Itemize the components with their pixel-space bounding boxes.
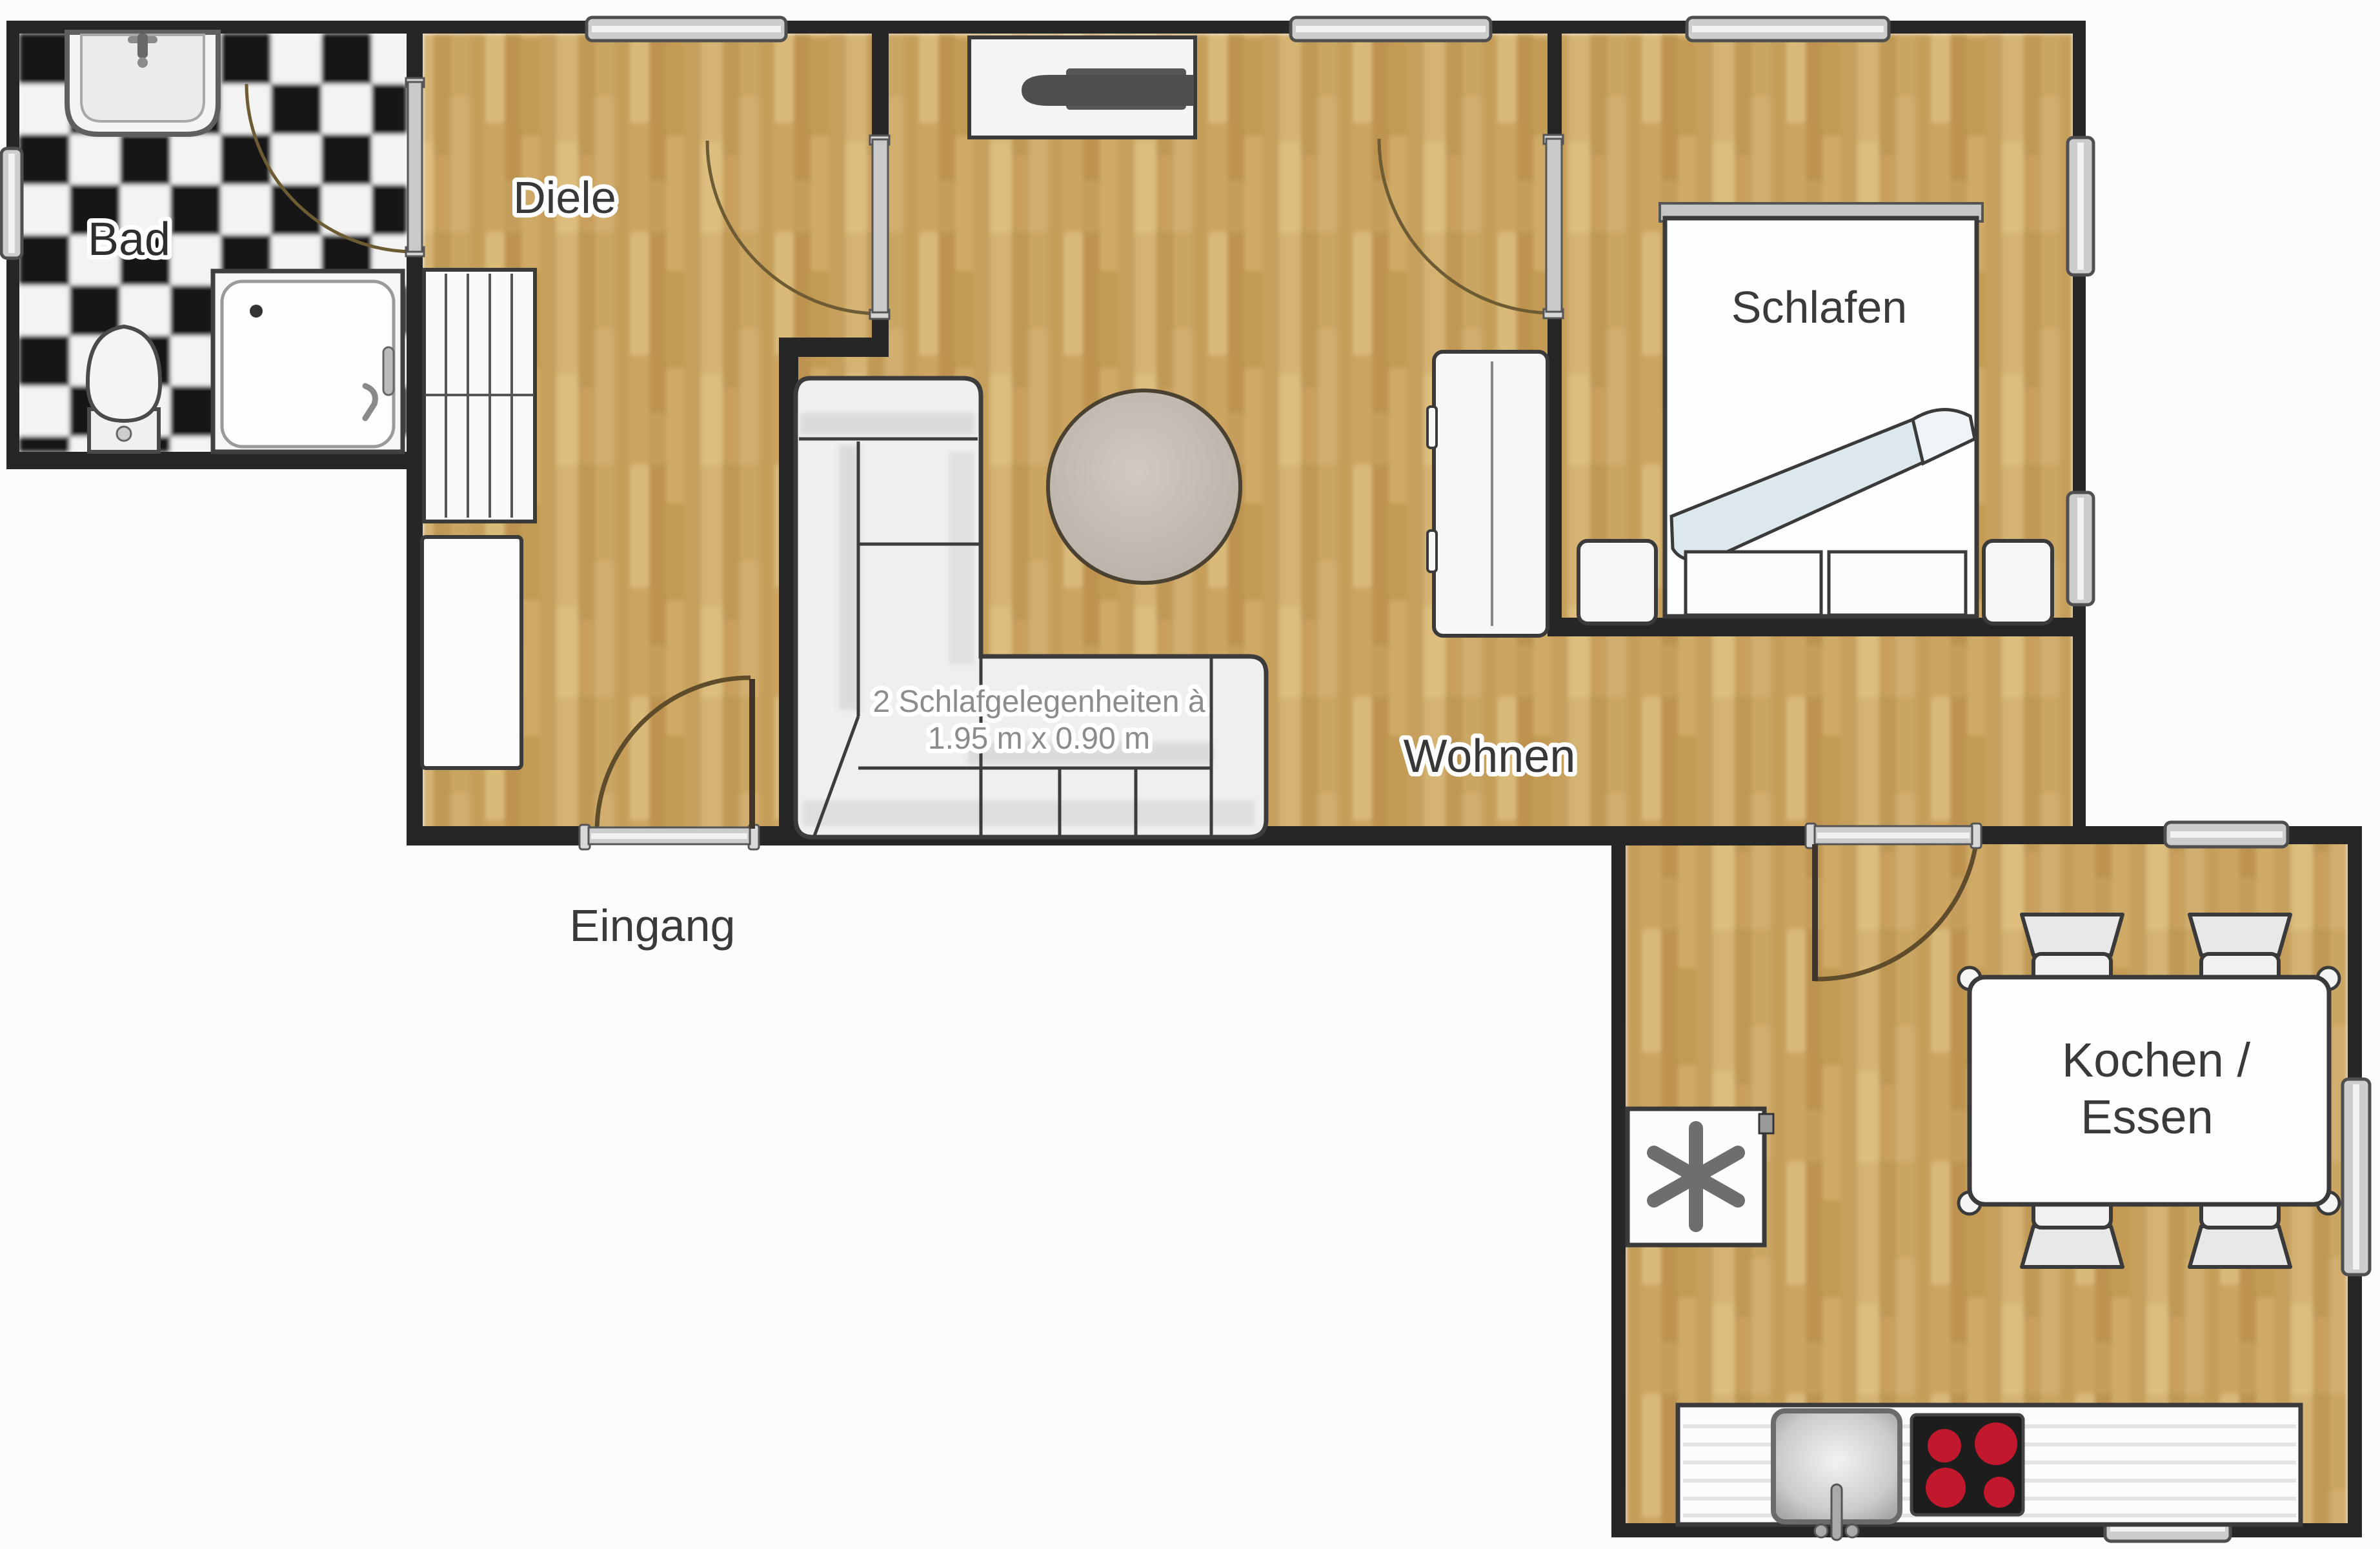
svg-text:Bad: Bad <box>88 214 170 265</box>
svg-text:2 Schlafgelegenheiten à: 2 Schlafgelegenheiten à <box>872 685 1205 719</box>
svg-text:1.95 m x 0.90 m: 1.95 m x 0.90 m <box>928 722 1150 756</box>
svg-text:Essen: Essen <box>2081 1090 2214 1144</box>
svg-text:Wohnen: Wohnen <box>1404 731 1576 782</box>
svg-text:Eingang: Eingang <box>570 900 736 951</box>
svg-text:Diele: Diele <box>513 172 616 223</box>
svg-text:Schlafen: Schlafen <box>1731 282 1907 332</box>
svg-text:Kochen /: Kochen / <box>2062 1033 2251 1087</box>
